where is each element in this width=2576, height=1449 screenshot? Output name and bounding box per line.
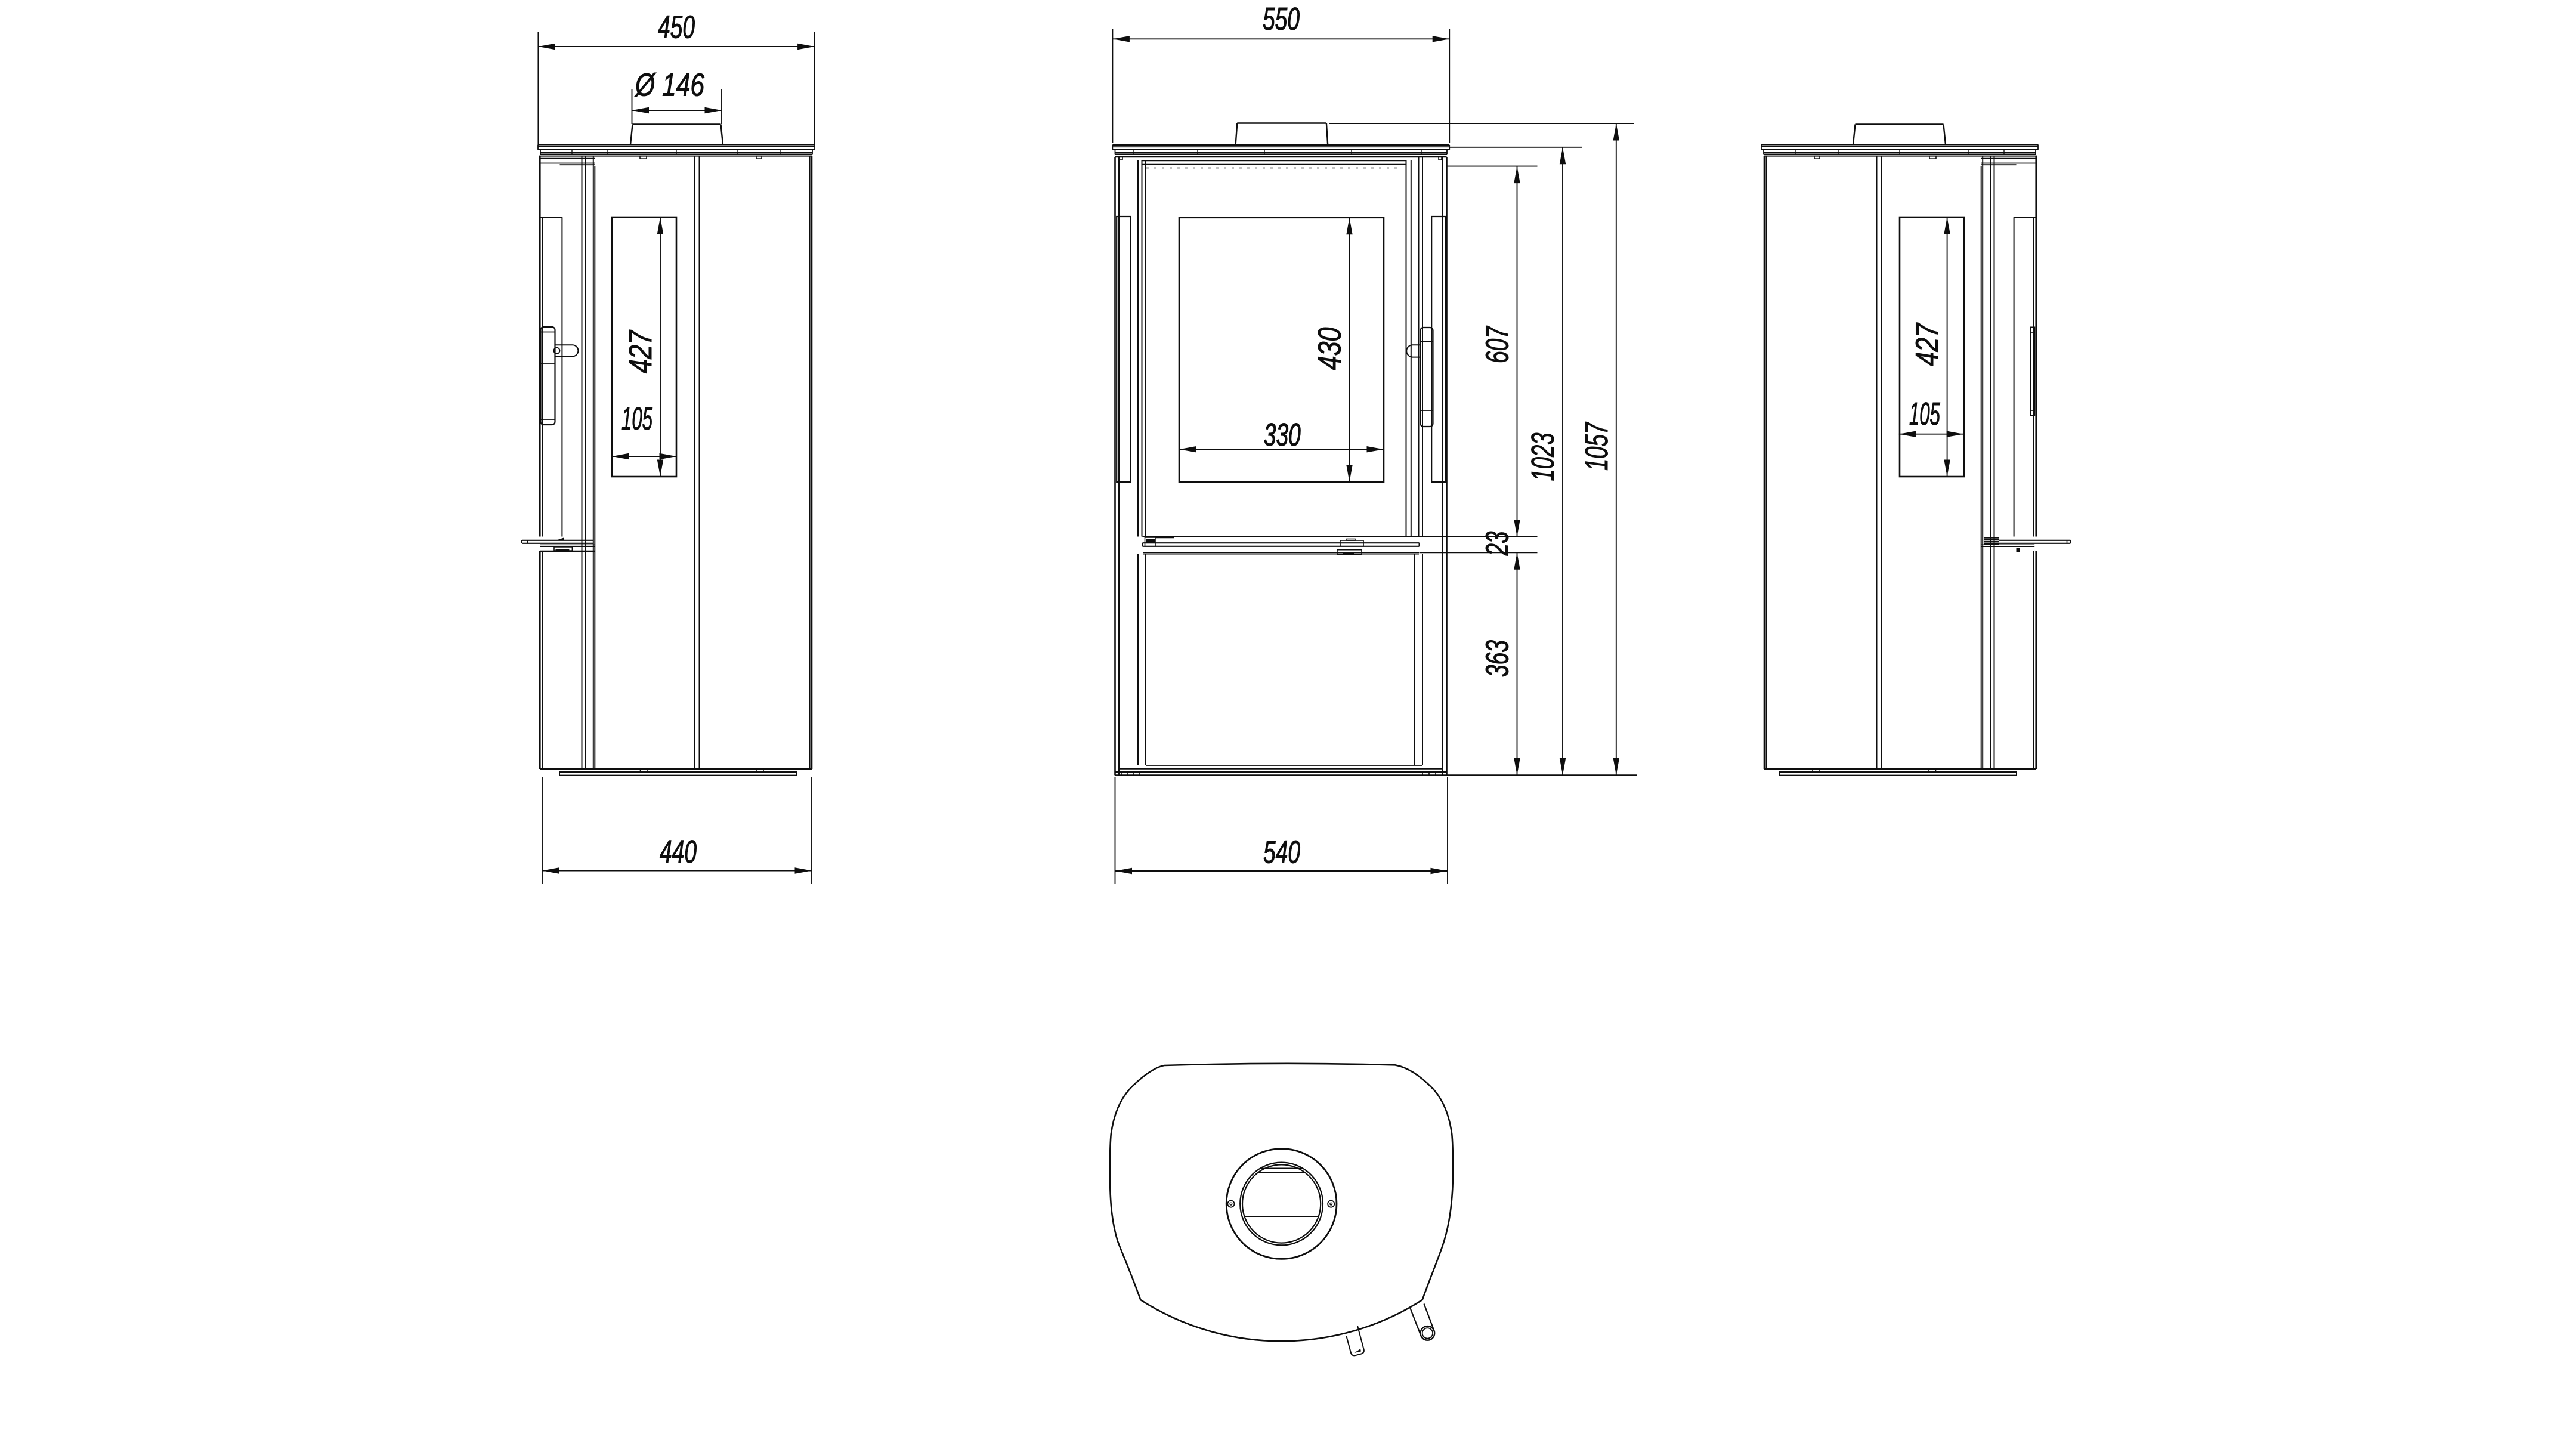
svg-text:440: 440 <box>660 834 697 870</box>
svg-text:1023: 1023 <box>1525 433 1561 481</box>
svg-text:550: 550 <box>1263 1 1300 37</box>
svg-text:1057: 1057 <box>1579 422 1615 471</box>
svg-text:Ø 146: Ø 146 <box>634 67 704 103</box>
svg-text:330: 330 <box>1264 417 1301 453</box>
svg-text:430: 430 <box>1312 328 1348 370</box>
svg-text:23: 23 <box>1480 532 1516 557</box>
svg-text:427: 427 <box>623 329 658 373</box>
svg-text:427: 427 <box>1910 322 1946 366</box>
svg-text:607: 607 <box>1480 326 1516 363</box>
svg-text:450: 450 <box>658 10 695 45</box>
svg-text:105: 105 <box>1909 396 1941 432</box>
svg-text:540: 540 <box>1263 835 1300 870</box>
svg-text:363: 363 <box>1480 640 1516 677</box>
svg-text:105: 105 <box>621 401 653 437</box>
